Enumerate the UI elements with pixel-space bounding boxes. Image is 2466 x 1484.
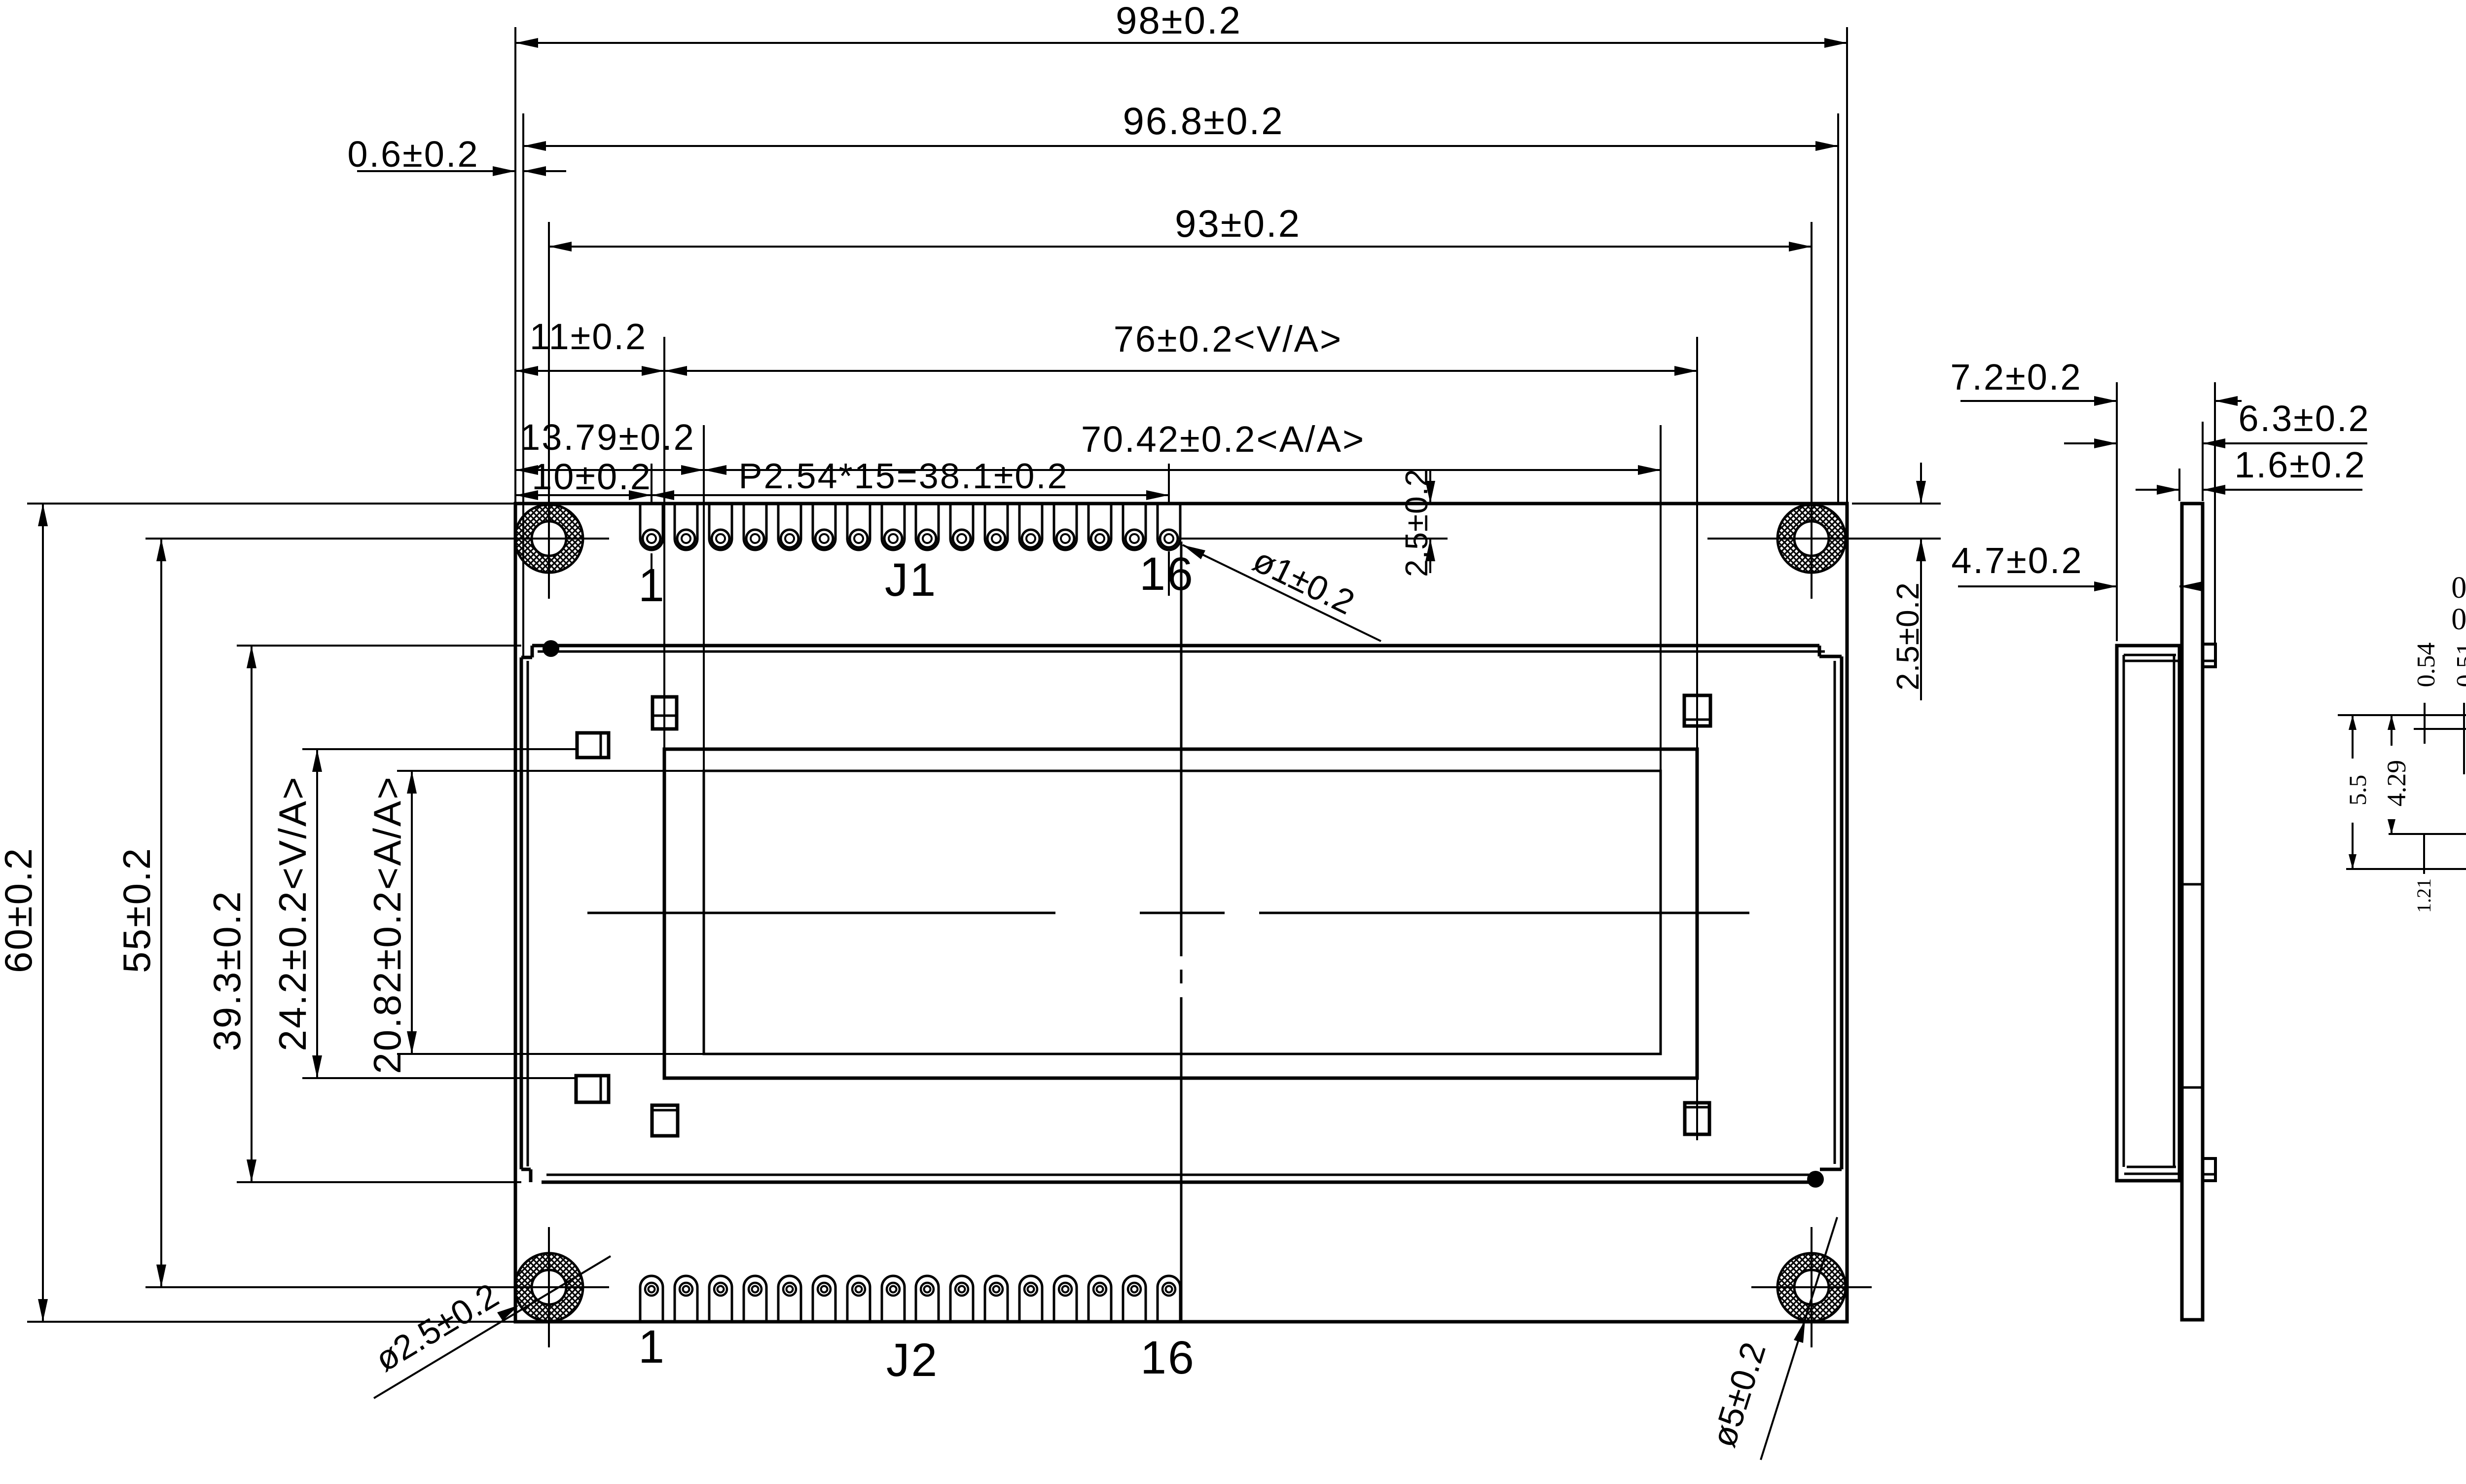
svg-text:0.54: 0.54 [2412, 643, 2440, 688]
svg-text:20.82±0.2<A/A>: 20.82±0.2<A/A> [365, 775, 409, 1074]
svg-text:7.2±0.2: 7.2±0.2 [1950, 357, 2082, 398]
svg-text:P2.54*15=38.1±0.2: P2.54*15=38.1±0.2 [738, 457, 1068, 496]
svg-text:24.2±0.2<V/A>: 24.2±0.2<V/A> [271, 776, 314, 1051]
svg-text:0.578: 0.578 [2451, 603, 2466, 636]
svg-text:5.5: 5.5 [2344, 775, 2371, 806]
svg-text:1.6±0.2: 1.6±0.2 [2234, 444, 2366, 485]
svg-text:0.6±0.2: 0.6±0.2 [347, 134, 479, 175]
svg-text:1: 1 [638, 1321, 666, 1373]
svg-text:16: 16 [1139, 548, 1195, 600]
svg-text:76±0.2<V/A>: 76±0.2<V/A> [1114, 319, 1343, 360]
svg-text:1.21: 1.21 [2413, 878, 2435, 913]
svg-text:70.42±0.2<A/A>: 70.42±0.2<A/A> [1081, 419, 1365, 460]
svg-text:6.3±0.2: 6.3±0.2 [2238, 398, 2370, 439]
svg-text:60±0.2: 60±0.2 [0, 847, 40, 973]
svg-text:2.5±0.2: 2.5±0.2 [1399, 469, 1434, 577]
svg-text:13.79±0.2: 13.79±0.2 [520, 417, 695, 458]
svg-text:16: 16 [1140, 1332, 1196, 1384]
svg-text:4.29: 4.29 [2382, 760, 2411, 807]
svg-text:39.3±0.2: 39.3±0.2 [205, 890, 249, 1051]
svg-text:11±0.2: 11±0.2 [530, 316, 647, 357]
svg-text:10±0.2: 10±0.2 [532, 456, 652, 497]
svg-text:0.598: 0.598 [2451, 571, 2466, 605]
svg-text:J1: J1 [885, 554, 937, 606]
svg-text:96.8±0.2: 96.8±0.2 [1123, 99, 1284, 143]
svg-text:J2: J2 [886, 1334, 939, 1386]
svg-text:93±0.2: 93±0.2 [1175, 202, 1301, 245]
svg-text:0.51: 0.51 [2452, 643, 2466, 688]
svg-text:98±0.2: 98±0.2 [1116, 0, 1242, 42]
svg-text:55±0.2: 55±0.2 [115, 847, 158, 973]
svg-text:4.7±0.2: 4.7±0.2 [1951, 540, 2083, 581]
svg-text:2.5±0.2: 2.5±0.2 [1890, 582, 1925, 690]
